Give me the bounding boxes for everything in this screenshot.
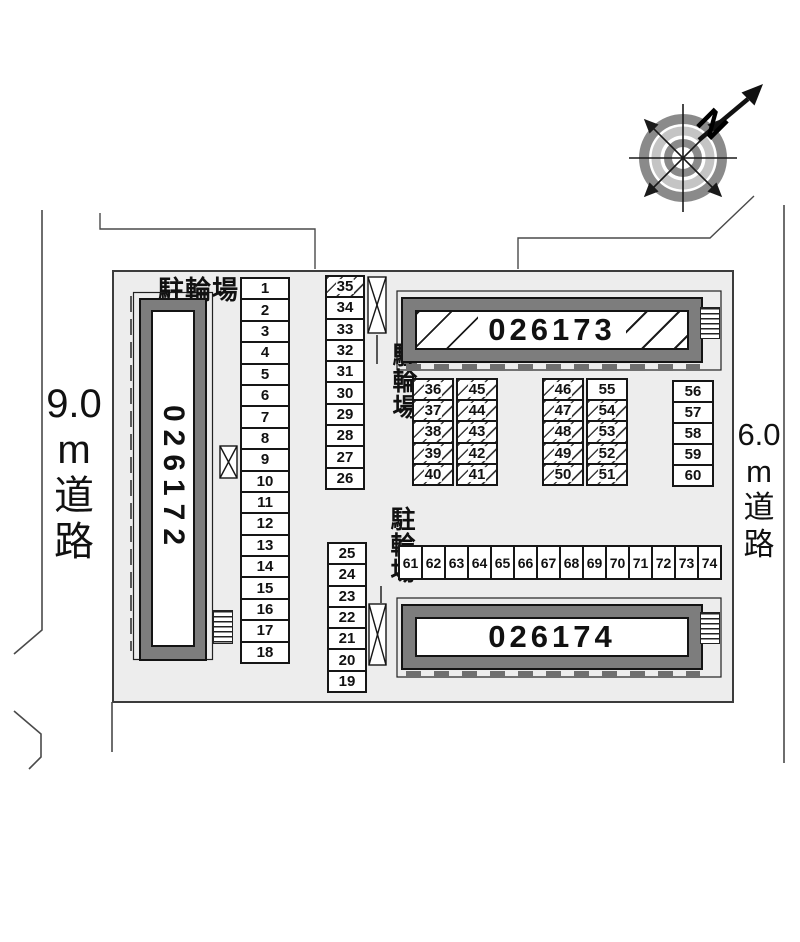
- parking-space: 66: [513, 545, 538, 580]
- parking-space: 7: [240, 405, 290, 428]
- space-number: 8: [260, 431, 270, 446]
- parking-space: 68: [559, 545, 584, 580]
- parking-space: 43: [456, 420, 498, 443]
- parking-space: 36: [412, 378, 454, 401]
- space-number: 15: [256, 581, 275, 596]
- space-number: 41: [468, 467, 487, 482]
- space-number: 50: [554, 467, 573, 482]
- road-label-6m: 6.0m道路: [734, 417, 784, 563]
- parking-column-56-60: 5657585960: [672, 380, 714, 487]
- space-number: 25: [338, 546, 357, 561]
- space-number: 32: [336, 343, 355, 358]
- parking-space: 2: [240, 298, 290, 321]
- space-number: 66: [517, 556, 535, 570]
- parking-space: 53: [586, 420, 628, 443]
- parking-space: 23: [327, 585, 367, 608]
- stairs-icon: [213, 610, 233, 644]
- space-number: 63: [448, 556, 466, 570]
- space-number: 73: [678, 556, 696, 570]
- parking-space: 34: [325, 296, 365, 319]
- parking-block-36-40: 3637383940: [412, 378, 454, 486]
- space-number: 26: [336, 471, 355, 486]
- building-026173: 026173: [401, 297, 703, 363]
- space-number: 58: [684, 426, 703, 441]
- parking-space: 24: [327, 563, 367, 586]
- parking-space: 20: [327, 648, 367, 671]
- parking-space: 50: [542, 463, 584, 486]
- parking-column-25-19: 25242322212019: [327, 542, 367, 693]
- stairs-icon: [700, 307, 720, 339]
- parking-block-55-51: 5554535251: [586, 378, 628, 486]
- boundary-callout-left: [100, 213, 315, 269]
- space-number: 3: [260, 324, 270, 339]
- parking-space: 27: [325, 445, 365, 468]
- space-number: 11: [256, 495, 274, 510]
- parking-space: 12: [240, 512, 290, 535]
- space-number: 55: [598, 382, 617, 397]
- parking-space: 9: [240, 448, 290, 471]
- space-number: 22: [338, 610, 357, 625]
- parking-space: 31: [325, 360, 365, 383]
- parking-space: 57: [672, 401, 714, 424]
- space-number: 31: [336, 364, 355, 379]
- parking-space: 73: [674, 545, 699, 580]
- parking-space: 29: [325, 403, 365, 426]
- space-number: 29: [336, 407, 355, 422]
- parking-space: 70: [605, 545, 630, 580]
- space-number: 2: [260, 303, 270, 318]
- space-number: 56: [684, 384, 703, 399]
- space-number: 46: [554, 382, 573, 397]
- road-label-line: 道: [44, 473, 104, 519]
- space-number: 65: [494, 556, 512, 570]
- space-number: 6: [260, 388, 270, 403]
- space-number: 45: [468, 382, 487, 397]
- parking-space: 6: [240, 384, 290, 407]
- compass-rose: N: [629, 84, 763, 212]
- space-number: 42: [468, 446, 487, 461]
- parking-block-46-50: 4647484950: [542, 378, 584, 486]
- space-number: 49: [554, 446, 573, 461]
- space-number: 38: [424, 424, 443, 439]
- parking-space: 45: [456, 378, 498, 401]
- space-number: 5: [260, 367, 270, 382]
- building-label: 026173: [478, 312, 625, 348]
- parking-space: 16: [240, 598, 290, 621]
- space-number: 53: [598, 424, 617, 439]
- parking-space: 11: [240, 491, 290, 514]
- parking-space: 51: [586, 463, 628, 486]
- space-number: 44: [468, 403, 487, 418]
- parking-space: 22: [327, 606, 367, 629]
- parking-space: 59: [672, 443, 714, 466]
- space-number: 23: [338, 589, 357, 604]
- space-number: 70: [609, 556, 627, 570]
- space-number: 59: [684, 447, 703, 462]
- space-number: 62: [425, 556, 443, 570]
- balcony-tabs-026173: [406, 364, 700, 371]
- boundary-callout-compass: [518, 196, 754, 269]
- road-label-9m: 9.0m道路: [44, 381, 104, 565]
- parking-space: 52: [586, 442, 628, 465]
- space-number: 54: [598, 403, 617, 418]
- parking-space: 25: [327, 542, 367, 565]
- parking-space: 3: [240, 320, 290, 343]
- parking-space: 54: [586, 399, 628, 422]
- parking-space: 67: [536, 545, 561, 580]
- space-number: 74: [701, 556, 719, 570]
- parking-space: 42: [456, 442, 498, 465]
- space-number: 35: [336, 279, 355, 294]
- space-number: 28: [336, 428, 355, 443]
- parking-space: 5: [240, 363, 290, 386]
- road-label-line: 6.0: [734, 417, 784, 454]
- space-number: 24: [338, 567, 357, 582]
- road-label-line: 9.0: [44, 381, 104, 427]
- space-number: 51: [598, 467, 617, 482]
- space-number: 27: [336, 450, 355, 465]
- parking-space: 21: [327, 627, 367, 650]
- parking-space: 55: [586, 378, 628, 401]
- road-label-line: 路: [44, 519, 104, 565]
- parking-space: 60: [672, 464, 714, 487]
- space-number: 61: [402, 556, 420, 570]
- parking-space: 28: [325, 424, 365, 447]
- space-number: 68: [563, 556, 581, 570]
- parking-space: 49: [542, 442, 584, 465]
- parking-space: 38: [412, 420, 454, 443]
- parking-space: 62: [421, 545, 446, 580]
- parking-space: 14: [240, 555, 290, 578]
- parking-space: 40: [412, 463, 454, 486]
- parking-space: 74: [697, 545, 722, 580]
- space-number: 12: [256, 516, 275, 531]
- site-plan-canvas: N 駐輪場 駐輪場 駐輪場 026172 026173 026174 12345…: [0, 0, 800, 942]
- space-number: 21: [338, 631, 357, 646]
- parking-space: 1: [240, 277, 290, 300]
- north-arrow: N: [689, 84, 763, 147]
- space-number: 14: [256, 559, 275, 574]
- space-number: 19: [338, 674, 357, 689]
- parking-space: 15: [240, 576, 290, 599]
- parking-space: 13: [240, 534, 290, 557]
- parking-space: 26: [325, 467, 365, 490]
- space-number: 37: [424, 403, 443, 418]
- space-number: 72: [655, 556, 673, 570]
- space-number: 71: [632, 556, 650, 570]
- balcony-tabs-026174: [406, 671, 700, 678]
- space-number: 16: [256, 602, 275, 617]
- parking-column-35-26: 35343332313029282726: [325, 275, 365, 490]
- space-number: 52: [598, 446, 617, 461]
- parking-space: 10: [240, 470, 290, 493]
- building-026174: 026174: [401, 604, 703, 670]
- parking-space: 30: [325, 381, 365, 404]
- space-number: 57: [684, 405, 703, 420]
- space-number: 10: [256, 474, 275, 489]
- space-number: 43: [468, 424, 487, 439]
- parking-space: 18: [240, 641, 290, 664]
- parking-space: 44: [456, 399, 498, 422]
- parking-space: 64: [467, 545, 492, 580]
- road-label-line: m: [44, 427, 104, 473]
- space-number: 33: [336, 322, 355, 337]
- space-number: 47: [554, 403, 573, 418]
- parking-space: 71: [628, 545, 653, 580]
- parking-space: 35: [325, 275, 365, 298]
- space-number: 34: [336, 300, 355, 315]
- road-label-line: 路: [734, 527, 784, 564]
- parking-space: 37: [412, 399, 454, 422]
- parking-space: 63: [444, 545, 469, 580]
- space-number: 36: [424, 382, 443, 397]
- space-number: 64: [471, 556, 489, 570]
- building-label: 026172: [156, 404, 190, 552]
- stairs-icon: [700, 612, 720, 644]
- parking-space: 72: [651, 545, 676, 580]
- parking-space: 33: [325, 318, 365, 341]
- parking-space: 8: [240, 427, 290, 450]
- space-number: 30: [336, 386, 355, 401]
- space-number: 18: [256, 645, 275, 660]
- parking-row-61-74: 6162636465666768697071727374: [398, 545, 722, 580]
- space-number: 39: [424, 446, 443, 461]
- parking-space: 56: [672, 380, 714, 403]
- space-number: 17: [256, 623, 275, 638]
- building-label: 026174: [488, 619, 615, 655]
- parking-block-45-41: 4544434241: [456, 378, 498, 486]
- space-number: 4: [260, 345, 270, 360]
- parking-space: 46: [542, 378, 584, 401]
- road-label-line: 道: [734, 490, 784, 527]
- parking-space: 41: [456, 463, 498, 486]
- parking-space: 69: [582, 545, 607, 580]
- space-number: 60: [684, 468, 703, 483]
- space-number: 1: [260, 281, 270, 296]
- space-number: 20: [338, 653, 357, 668]
- road-label-line: m: [734, 454, 784, 491]
- parking-space: 17: [240, 619, 290, 642]
- parking-space: 47: [542, 399, 584, 422]
- building-026172: 026172: [139, 298, 207, 661]
- parking-space: 61: [398, 545, 423, 580]
- parking-space: 39: [412, 442, 454, 465]
- space-number: 9: [260, 452, 270, 467]
- parking-space: 4: [240, 341, 290, 364]
- space-number: 13: [256, 538, 275, 553]
- space-number: 69: [586, 556, 604, 570]
- space-number: 40: [424, 467, 443, 482]
- parking-space: 58: [672, 422, 714, 445]
- parking-column-1-18: 123456789101112131415161718: [240, 277, 290, 664]
- space-number: 7: [260, 410, 270, 425]
- parking-space: 48: [542, 420, 584, 443]
- space-number: 67: [540, 556, 558, 570]
- space-number: 48: [554, 424, 573, 439]
- parking-space: 65: [490, 545, 515, 580]
- left-road-line: [14, 210, 42, 769]
- north-label: N: [689, 100, 736, 147]
- parking-space: 19: [327, 670, 367, 693]
- parking-space: 32: [325, 339, 365, 362]
